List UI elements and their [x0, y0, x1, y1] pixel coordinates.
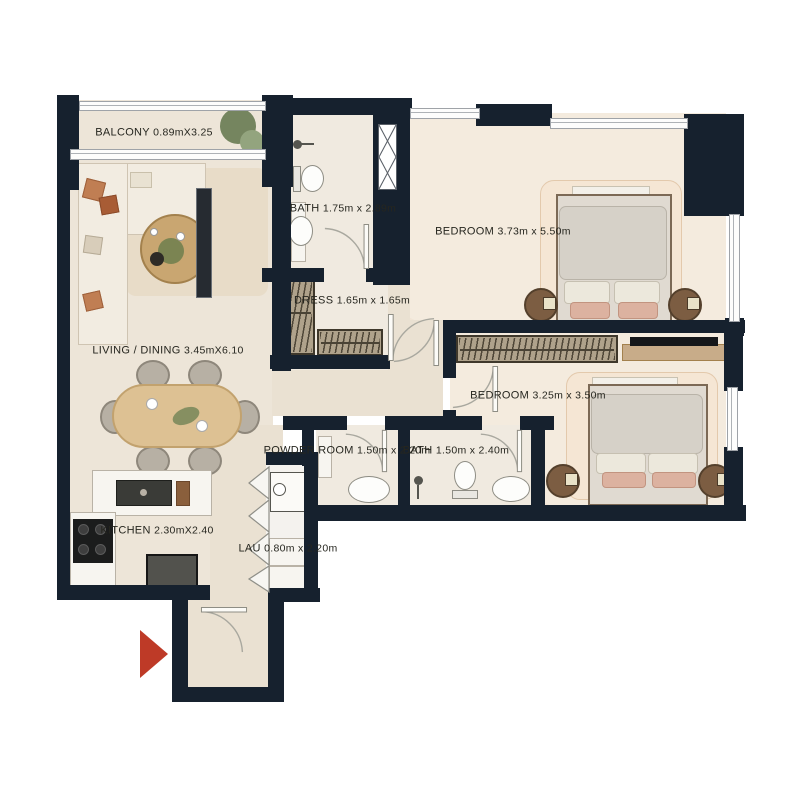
tv-console [622, 344, 726, 361]
wall [283, 416, 347, 430]
hall-mid-floor [272, 369, 443, 416]
bedroom2-wardrobe [456, 335, 618, 363]
table-cup [176, 232, 185, 241]
laundry-bifold-doors [244, 465, 270, 593]
burner [78, 544, 89, 555]
wall [172, 595, 188, 702]
duct-shaft [378, 124, 397, 190]
wall [304, 452, 318, 595]
bedroom2-window-right [727, 387, 738, 451]
toilet-tank [293, 166, 301, 192]
wall [57, 185, 70, 600]
wall [531, 416, 545, 509]
wall [262, 268, 324, 282]
room-label-living: LIVING / DINING 3.45mX6.10 [92, 344, 243, 359]
bath2-shower-stem [417, 485, 419, 499]
entry-door [201, 607, 247, 653]
room-name: POWDER ROOM [264, 445, 354, 457]
room-name: KITCHEN [100, 525, 150, 537]
wall [366, 268, 393, 282]
burner [78, 524, 89, 535]
bed2-pillow [648, 453, 698, 474]
bath2-toilet [454, 461, 476, 490]
room-label-balcony: BALCONY 0.89mX3.25 [95, 126, 212, 141]
table-tray [150, 252, 164, 266]
bed2-nightstand [546, 464, 580, 498]
burner [95, 544, 106, 555]
bed1-pillow [614, 281, 660, 304]
room-dims: 2.30mX2.40 [154, 525, 214, 537]
wall [684, 114, 744, 216]
bed2-pillow-accent [602, 472, 646, 488]
sofa-pillow [99, 195, 120, 216]
bed1-pillow [564, 281, 610, 304]
bath1-door [324, 224, 369, 269]
bed1-duvet [559, 206, 667, 280]
room-label-bath2: BATH 1.50m x 2.40m [403, 444, 509, 459]
wall [270, 355, 390, 369]
bed2-pillow-accent [652, 472, 696, 488]
room-label-dress: DRESS 1.65m x 1.65m [294, 294, 410, 309]
room-name: DRESS [294, 295, 333, 307]
entry-arrow [140, 630, 168, 678]
bed2-pillow [596, 453, 646, 474]
room-name: BATH [403, 445, 433, 457]
wall [57, 95, 79, 190]
wall [443, 320, 745, 333]
sink [289, 216, 313, 246]
corridor-door [393, 320, 439, 366]
room-dims: 3.25m x 3.50m [532, 390, 605, 402]
shower-arm [300, 143, 314, 145]
kitchen-faucet [140, 489, 147, 496]
bed1-pillow-accent [618, 302, 658, 319]
room-dims: 1.75m x 2.89m [323, 203, 396, 215]
bed1-nightstand [668, 288, 702, 322]
sofa-pillow [83, 235, 103, 255]
room-name: LAU [238, 543, 260, 555]
room-name: BALCONY [95, 127, 149, 139]
balcony-window [79, 101, 266, 111]
room-dims: 3.45mX6.10 [184, 345, 244, 357]
room-label-kitchen: KITCHEN 2.30mX2.40 [100, 524, 213, 539]
bedroom1-window-right [729, 214, 740, 322]
dining-plate [146, 398, 158, 410]
dress-wardrobe-south [317, 329, 383, 356]
sofa-pillow [130, 172, 152, 188]
powder-sink [348, 476, 390, 503]
wall [476, 104, 552, 126]
room-name: BEDROOM [435, 226, 494, 238]
bed2-duvet [591, 394, 703, 454]
tv-unit [196, 188, 212, 298]
room-dims: 0.80m x 2.20m [264, 543, 337, 555]
room-dims: 1.50m x 2.40m [436, 445, 509, 457]
room-label-laundry: LAU 0.80m x 2.20m [238, 542, 337, 557]
room-label-bath1: BATH 1.75m x 2.89m [290, 202, 396, 217]
washer-door [273, 483, 286, 496]
tv [630, 337, 718, 346]
bed1-nightstand [524, 288, 558, 322]
wall [724, 333, 743, 391]
room-name: BEDROOM [470, 390, 529, 402]
room-label-bedroom2: BEDROOM 3.25m x 3.50m [470, 389, 606, 404]
room-dims: 1.65m x 1.65m [337, 295, 410, 307]
bedroom1-window-a [410, 108, 480, 119]
bath2-sink [492, 476, 530, 502]
room-name: BATH [290, 203, 320, 215]
room-dims: 0.89mX3.25 [153, 127, 213, 139]
bath2-toilet-tank [452, 490, 478, 499]
balcony-divider-window [70, 149, 266, 160]
room-label-bedroom1: BEDROOM 3.73m x 5.50m [435, 225, 571, 240]
toilet [301, 165, 324, 192]
floor-plan: BALCONY 0.89mX3.25 LIVING / DINING 3.45m… [0, 0, 800, 800]
wall [172, 687, 284, 702]
wall [268, 597, 284, 689]
bedroom1-window-b [550, 118, 688, 129]
bath2-shower-icon [414, 476, 423, 485]
dining-plate [196, 420, 208, 432]
bed1-pillow-accent [570, 302, 610, 319]
cutting-board [176, 481, 190, 506]
room-dims: 3.73m x 5.50m [497, 226, 570, 238]
wall [398, 425, 410, 509]
table-cup [150, 228, 158, 236]
room-name: LIVING / DINING [92, 345, 180, 357]
